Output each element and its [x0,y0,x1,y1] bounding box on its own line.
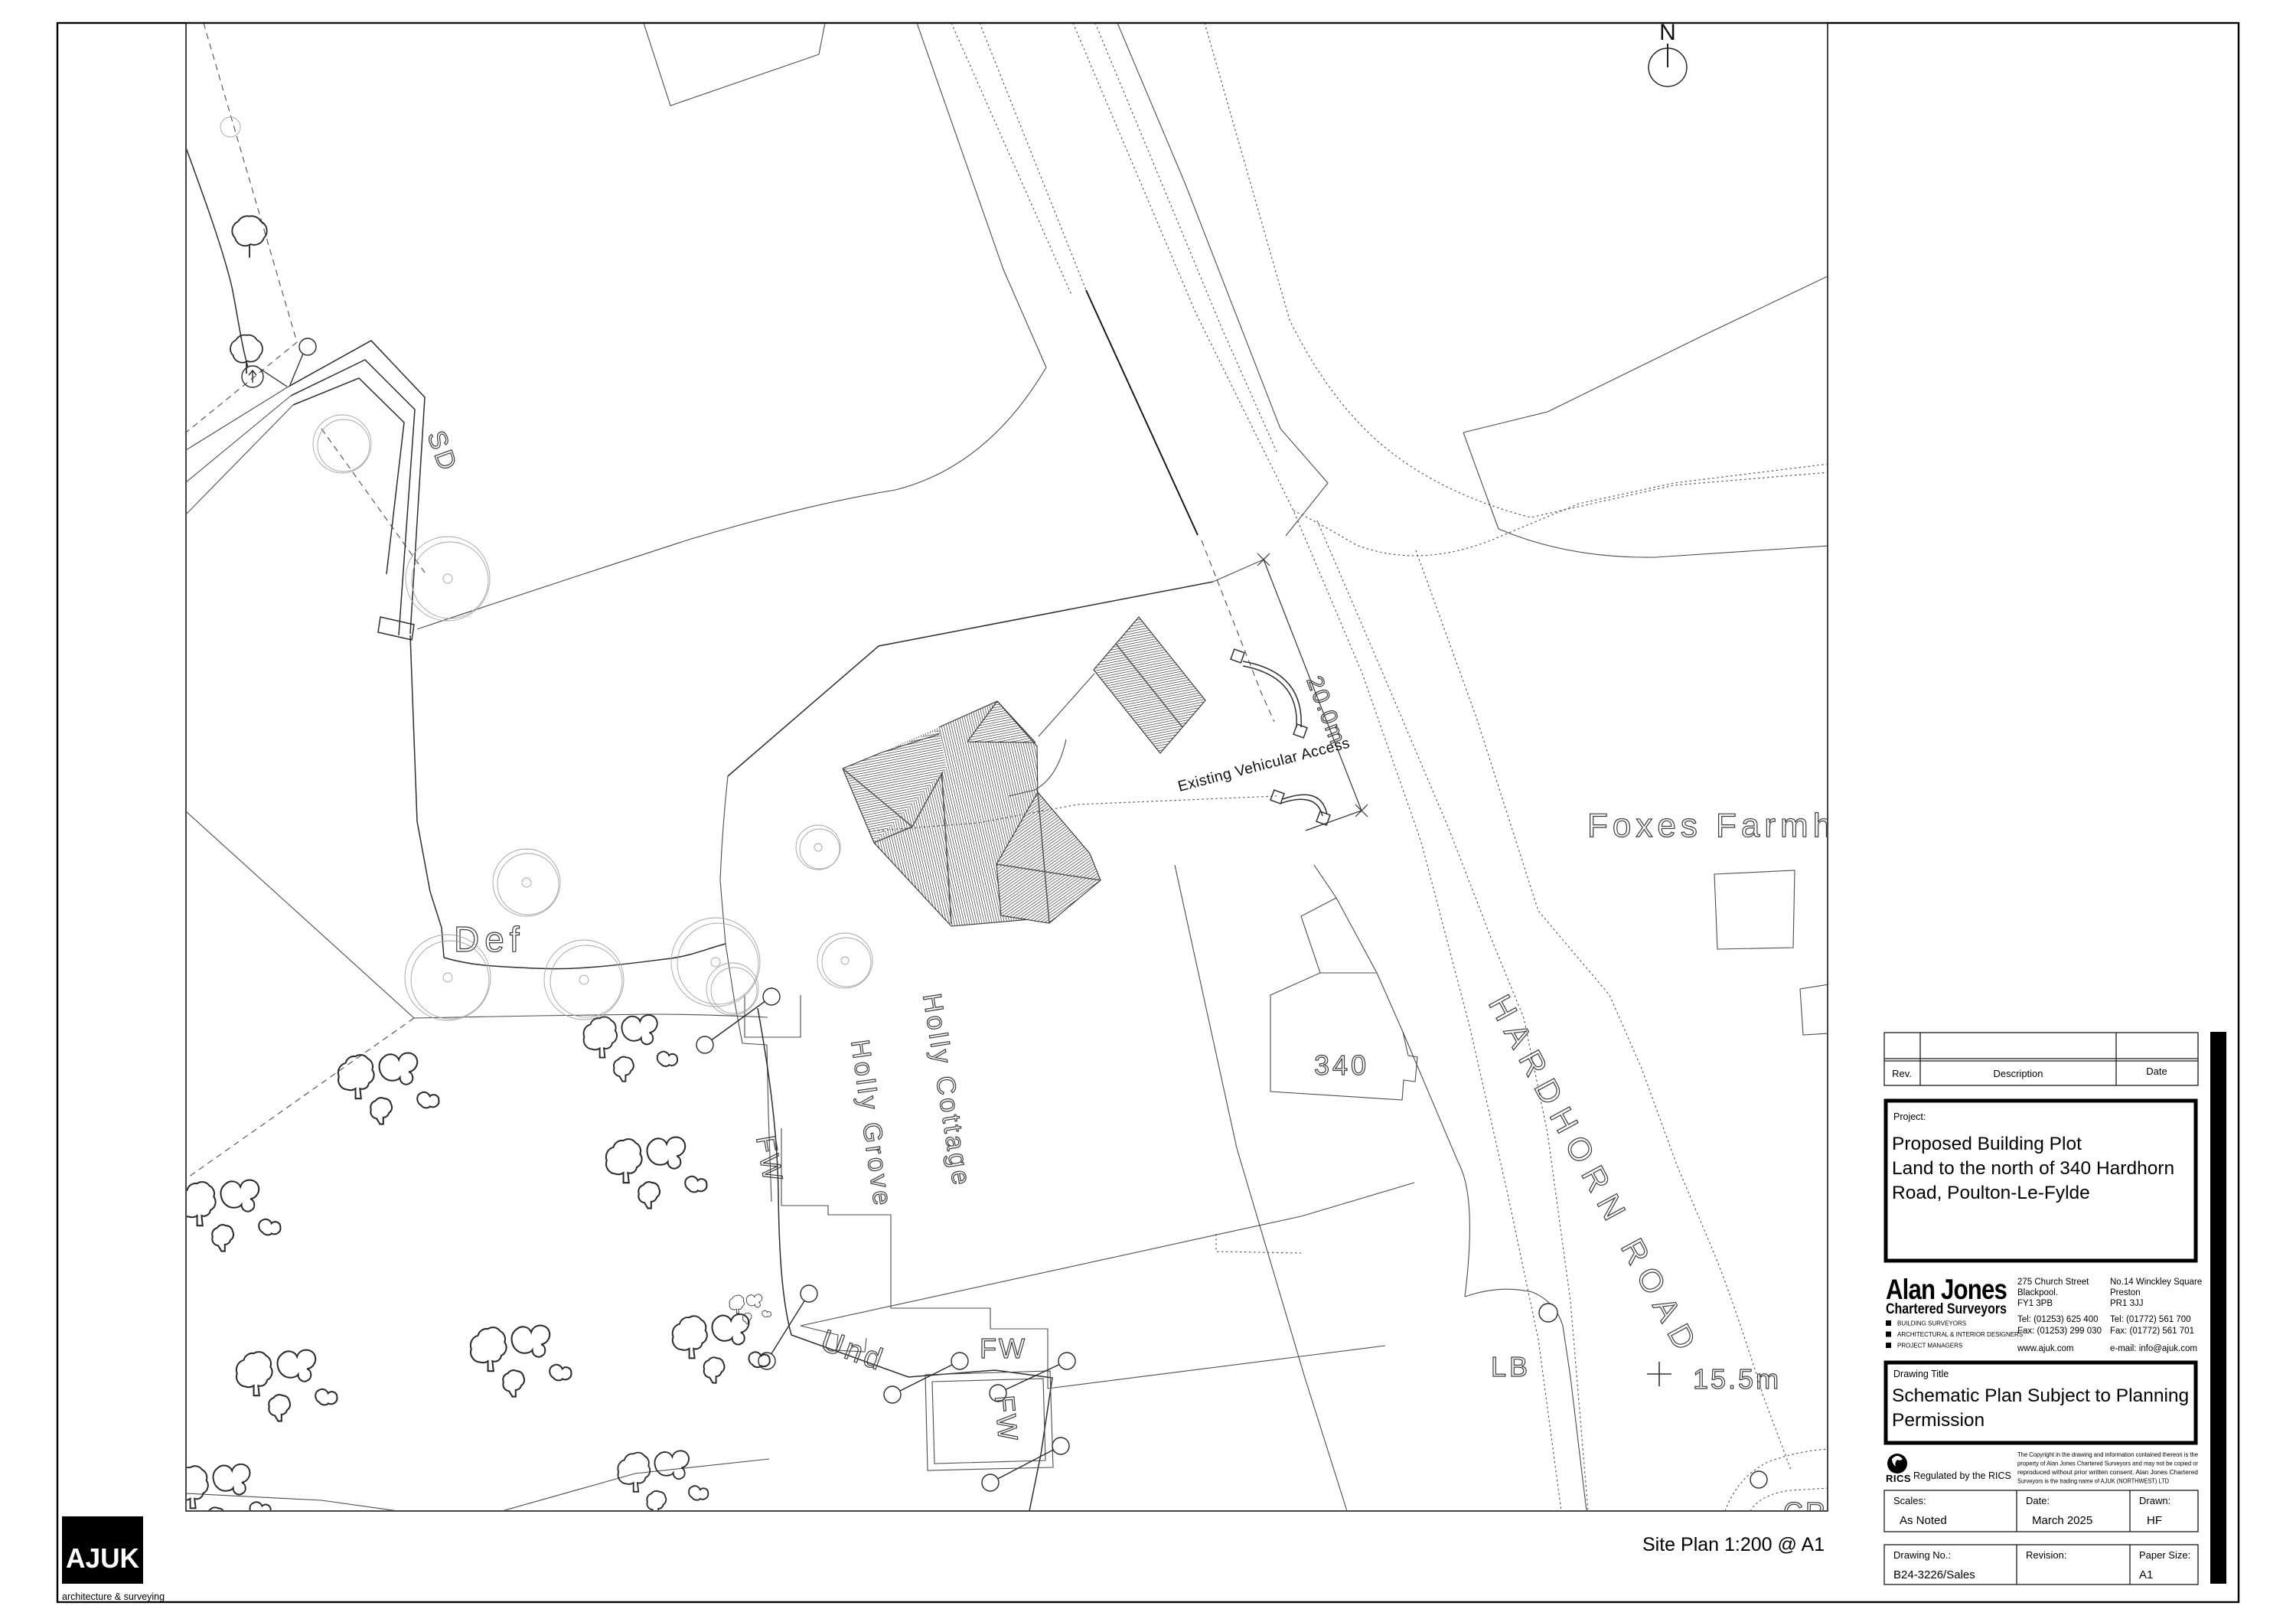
svg-text:No.14 Winckley Square: No.14 Winckley Square [2110,1278,2202,1287]
svg-text:Schematic Plan Subject to Plan: Schematic Plan Subject to Planning [1892,1385,2189,1406]
svg-text:property of Alan Jones Charter: property of Alan Jones Chartered Surveyo… [2017,1460,2198,1467]
svg-text:Regulated by the RICS: Regulated by the RICS [1913,1470,2011,1481]
svg-text:Land to the north of 340 Hardh: Land to the north of 340 Hardhorn [1892,1158,2174,1179]
svg-text:Tel: (01772) 561 700: Tel: (01772) 561 700 [2110,1315,2191,1324]
svg-text:Description: Description [1993,1068,2043,1079]
svg-text:LB: LB [1491,1351,1531,1382]
svg-text:Scales:: Scales: [1893,1495,1926,1506]
svg-text:Drawn:: Drawn: [2139,1495,2170,1506]
svg-text:Rev.: Rev. [1892,1068,1912,1079]
svg-text:Drawing Title: Drawing Title [1893,1369,1949,1379]
svg-text:15.5m: 15.5m [1693,1363,1781,1395]
svg-text:Date:: Date: [2026,1495,2050,1506]
svg-text:PR1 3JJ: PR1 3JJ [2110,1299,2143,1308]
svg-text:Revision:: Revision: [2026,1549,2066,1561]
svg-text:reproduced without prior wr: reproduced without prior written consent… [2017,1469,2198,1476]
svg-text:Tel: (01253) 625 400: Tel: (01253) 625 400 [2017,1315,2099,1324]
svg-text:275 Church Street: 275 Church Street [2017,1278,2089,1287]
svg-text:Drawing No.:: Drawing No.: [1893,1549,1951,1561]
svg-text:Surveyors is the trading name: Surveyors is the trading name of AJUK (N… [2017,1478,2169,1485]
svg-text:Permission: Permission [1892,1410,1985,1431]
svg-text:HF: HF [2147,1514,2162,1527]
svg-text:FY1 3PB: FY1 3PB [2017,1299,2053,1308]
svg-text:architecture & surveying: architecture & surveying [62,1591,165,1602]
svg-text:Fax: (01772) 561 701: Fax: (01772) 561 701 [2110,1327,2194,1336]
svg-text:A1: A1 [2139,1568,2153,1581]
svg-text:Chartered Surveyors: Chartered Surveyors [1886,1301,2007,1317]
svg-text:As Noted: As Noted [1900,1514,1947,1527]
svg-text:Proposed Building Plot: Proposed Building Plot [1892,1134,2082,1154]
svg-text:RICS: RICS [1886,1473,1911,1484]
svg-text:PROJECT MANAGERS: PROJECT MANAGERS [1897,1343,1962,1349]
svg-text:Date: Date [2146,1066,2167,1077]
svg-text:BUILDING SURVEYORS: BUILDING SURVEYORS [1897,1320,1966,1327]
svg-text:Def: Def [454,919,525,959]
svg-text:Blackpool.: Blackpool. [2017,1288,2058,1297]
svg-text:B24-3226/Sales: B24-3226/Sales [1893,1568,1975,1581]
svg-text:FW: FW [980,1333,1027,1364]
svg-text:Paper Size:: Paper Size: [2139,1549,2190,1561]
svg-text:Road, Poulton-Le-Fylde: Road, Poulton-Le-Fylde [1892,1183,2090,1203]
svg-text:e-mail: info@ajuk.com: e-mail: info@ajuk.com [2110,1344,2197,1353]
svg-text:March 2025: March 2025 [2032,1514,2092,1527]
svg-text:ARCHITECTURAL & INTERIOR DESIG: ARCHITECTURAL & INTERIOR DESIGNERS [1897,1331,2023,1338]
svg-text:FW: FW [989,1394,1024,1444]
svg-text:340: 340 [1314,1049,1369,1081]
svg-text:Site Plan 1:200 @ A1: Site Plan 1:200 @ A1 [1642,1534,1825,1555]
svg-text:Project:: Project: [1893,1111,1926,1122]
svg-text:Preston: Preston [2110,1288,2141,1297]
svg-text:AJUK: AJUK [66,1542,139,1574]
svg-text:www.ajuk.com: www.ajuk.com [2017,1344,2074,1353]
svg-text:Fax: (01253) 299 030: Fax: (01253) 299 030 [2017,1327,2102,1336]
svg-text:Foxes Farmh: Foxes Farmh [1587,807,1836,844]
svg-text:The Copyright in the drawing a: The Copyright in the drawing and informa… [2017,1451,2199,1458]
